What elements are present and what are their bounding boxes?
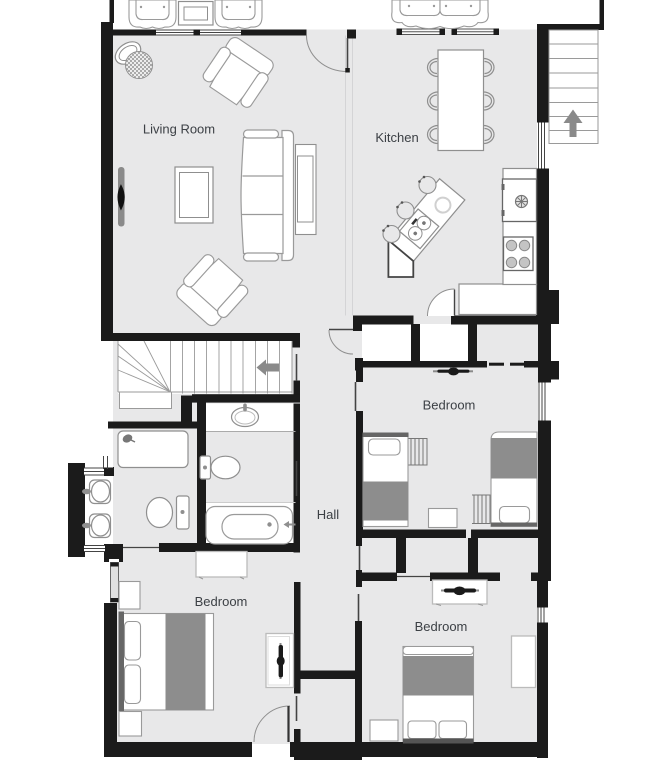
svg-text:Kitchen: Kitchen	[375, 130, 418, 145]
svg-text:Bedroom: Bedroom	[195, 594, 248, 609]
svg-text:Bedroom: Bedroom	[415, 619, 468, 634]
svg-text:Bedroom: Bedroom	[423, 398, 476, 413]
svg-text:Hall: Hall	[317, 507, 340, 522]
svg-text:Living Room: Living Room	[143, 122, 215, 137]
